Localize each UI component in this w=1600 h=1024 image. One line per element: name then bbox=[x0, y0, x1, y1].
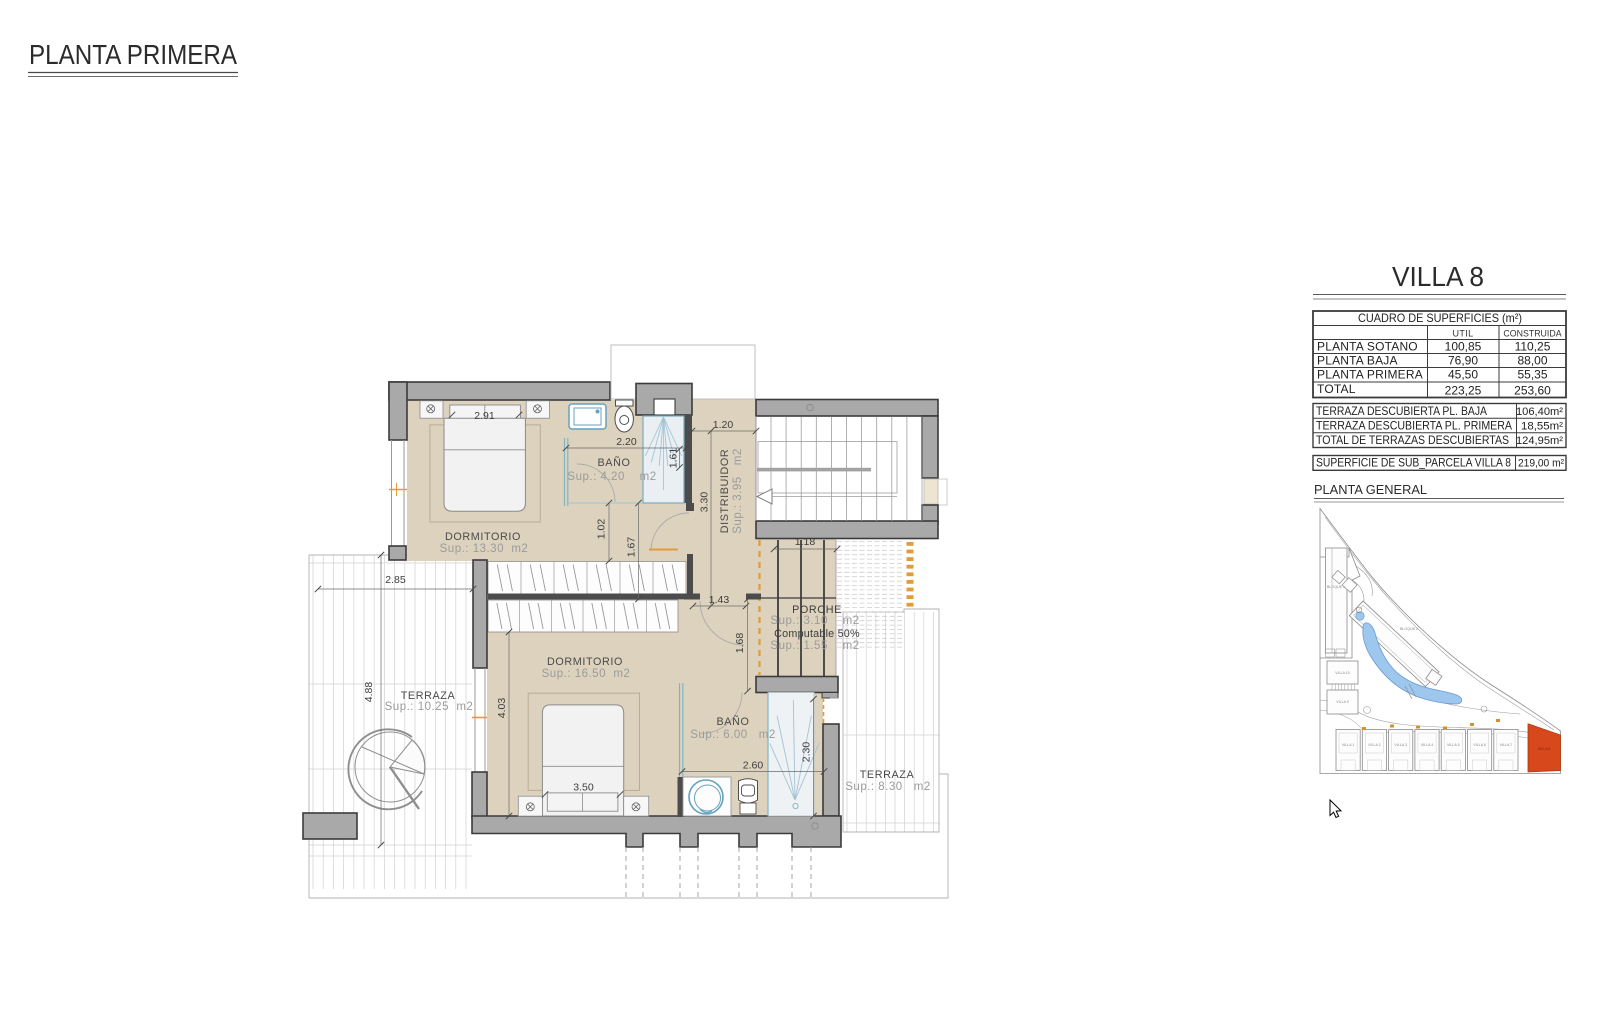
svg-text:253,60: 253,60 bbox=[1514, 384, 1551, 398]
svg-text:219,00 m²: 219,00 m² bbox=[1518, 458, 1564, 470]
svg-text:1.20: 1.20 bbox=[713, 419, 734, 431]
svg-text:2.91: 2.91 bbox=[474, 410, 495, 422]
svg-text:SUPERFICIE DE SUB_PARCELA VILL: SUPERFICIE DE SUB_PARCELA VILLA 8 bbox=[1316, 457, 1511, 470]
svg-text:CONSTRUIDA: CONSTRUIDA bbox=[1503, 329, 1561, 339]
svg-text:TERRAZA DESCUBIERTA PL. BAJA: TERRAZA DESCUBIERTA PL. BAJA bbox=[1316, 405, 1487, 418]
svg-text:124,95m²: 124,95m² bbox=[1516, 435, 1563, 447]
svg-text:2.85: 2.85 bbox=[385, 574, 406, 586]
svg-text:1.43: 1.43 bbox=[709, 594, 730, 606]
svg-text:VILLA 3: VILLA 3 bbox=[1394, 743, 1407, 747]
svg-text:88,00: 88,00 bbox=[1517, 354, 1547, 368]
svg-text:Sup.: 16.50 m2: Sup.: 16.50 m2 bbox=[542, 668, 631, 680]
svg-text:2.30: 2.30 bbox=[801, 742, 813, 763]
svg-text:Sup.: 4.20 m2: Sup.: 4.20 m2 bbox=[567, 471, 656, 483]
svg-text:VILLA 2: VILLA 2 bbox=[1368, 743, 1381, 747]
svg-text:1.68: 1.68 bbox=[734, 633, 746, 654]
svg-text:VILLA 9: VILLA 9 bbox=[1336, 700, 1349, 704]
svg-text:18,55m²: 18,55m² bbox=[1521, 420, 1563, 432]
svg-text:Sup.: 10.25 m2: Sup.: 10.25 m2 bbox=[385, 701, 474, 713]
svg-text:BAÑO: BAÑO bbox=[598, 456, 631, 469]
svg-text:1.61: 1.61 bbox=[668, 448, 680, 469]
svg-text:DISTRIBUIDOR: DISTRIBUIDOR bbox=[719, 449, 731, 534]
svg-text:BLOQUE 2: BLOQUE 2 bbox=[1400, 627, 1418, 631]
svg-text:Sup.: 6.00 m2: Sup.: 6.00 m2 bbox=[690, 729, 776, 741]
svg-text:VILLA 10: VILLA 10 bbox=[1335, 671, 1350, 675]
svg-text:3.50: 3.50 bbox=[573, 782, 594, 794]
svg-text:223,25: 223,25 bbox=[1445, 384, 1482, 398]
svg-text:TOTAL DE TERRAZAS DESCUBIERTAS: TOTAL DE TERRAZAS DESCUBIERTAS bbox=[1316, 434, 1509, 447]
svg-text:4.88: 4.88 bbox=[363, 682, 375, 703]
svg-text:100,85: 100,85 bbox=[1445, 340, 1482, 354]
svg-text:2.60: 2.60 bbox=[743, 760, 764, 772]
svg-text:VILLA 5: VILLA 5 bbox=[1447, 743, 1460, 747]
svg-text:Sup.: 1.55 m2: Sup.: 1.55 m2 bbox=[770, 640, 859, 652]
svg-text:110,25: 110,25 bbox=[1515, 340, 1551, 354]
svg-text:PLANTA SOTANO: PLANTA SOTANO bbox=[1317, 340, 1418, 354]
svg-text:Sup.: 8.30 m2: Sup.: 8.30 m2 bbox=[845, 781, 931, 793]
svg-text:VILLA 8: VILLA 8 bbox=[1392, 261, 1484, 292]
svg-text:1.67: 1.67 bbox=[626, 537, 638, 558]
svg-text:45,50: 45,50 bbox=[1448, 368, 1478, 382]
svg-text:PLANTA BAJA: PLANTA BAJA bbox=[1317, 354, 1398, 368]
svg-text:PLANTA PRIMERA: PLANTA PRIMERA bbox=[1317, 368, 1423, 382]
svg-text:PLANTA GENERAL: PLANTA GENERAL bbox=[1314, 482, 1427, 497]
svg-text:DORMITORIO: DORMITORIO bbox=[445, 531, 521, 543]
svg-text:55,35: 55,35 bbox=[1517, 368, 1547, 382]
svg-text:Sup.: 3.95 m2: Sup.: 3.95 m2 bbox=[732, 448, 744, 534]
svg-text:VILLA 4: VILLA 4 bbox=[1421, 743, 1434, 747]
svg-text:CUADRO DE SUPERFICIES (m²): CUADRO DE SUPERFICIES (m²) bbox=[1358, 311, 1522, 325]
svg-text:1.02: 1.02 bbox=[596, 519, 608, 540]
svg-text:VILLA 8: VILLA 8 bbox=[1538, 747, 1551, 751]
svg-text:VILLA 6: VILLA 6 bbox=[1473, 743, 1486, 747]
svg-text:VILLA 1: VILLA 1 bbox=[1342, 743, 1355, 747]
svg-text:106,40m²: 106,40m² bbox=[1516, 406, 1563, 418]
svg-text:DORMITORIO: DORMITORIO bbox=[547, 656, 623, 668]
svg-text:Sup.: 3.10 m2: Sup.: 3.10 m2 bbox=[770, 615, 859, 627]
svg-text:TERRAZA DESCUBIERTA PL. PRIMER: TERRAZA DESCUBIERTA PL. PRIMERA bbox=[1316, 419, 1512, 432]
svg-text:Sup.: 13.30 m2: Sup.: 13.30 m2 bbox=[440, 543, 529, 555]
svg-text:2.20: 2.20 bbox=[616, 436, 637, 448]
svg-text:TERRAZA: TERRAZA bbox=[860, 769, 915, 781]
svg-text:VILLA 7: VILLA 7 bbox=[1500, 743, 1513, 747]
svg-text:76,90: 76,90 bbox=[1448, 354, 1478, 368]
svg-text:Computable 50%: Computable 50% bbox=[774, 628, 860, 640]
svg-text:1.18: 1.18 bbox=[795, 536, 816, 548]
svg-text:UTIL: UTIL bbox=[1452, 329, 1473, 339]
svg-text:TOTAL: TOTAL bbox=[1317, 382, 1356, 396]
svg-text:4.03: 4.03 bbox=[496, 698, 508, 719]
svg-text:PLANTA PRIMERA: PLANTA PRIMERA bbox=[29, 39, 238, 70]
svg-text:3.30: 3.30 bbox=[699, 492, 711, 513]
svg-text:BAÑO: BAÑO bbox=[717, 715, 750, 728]
